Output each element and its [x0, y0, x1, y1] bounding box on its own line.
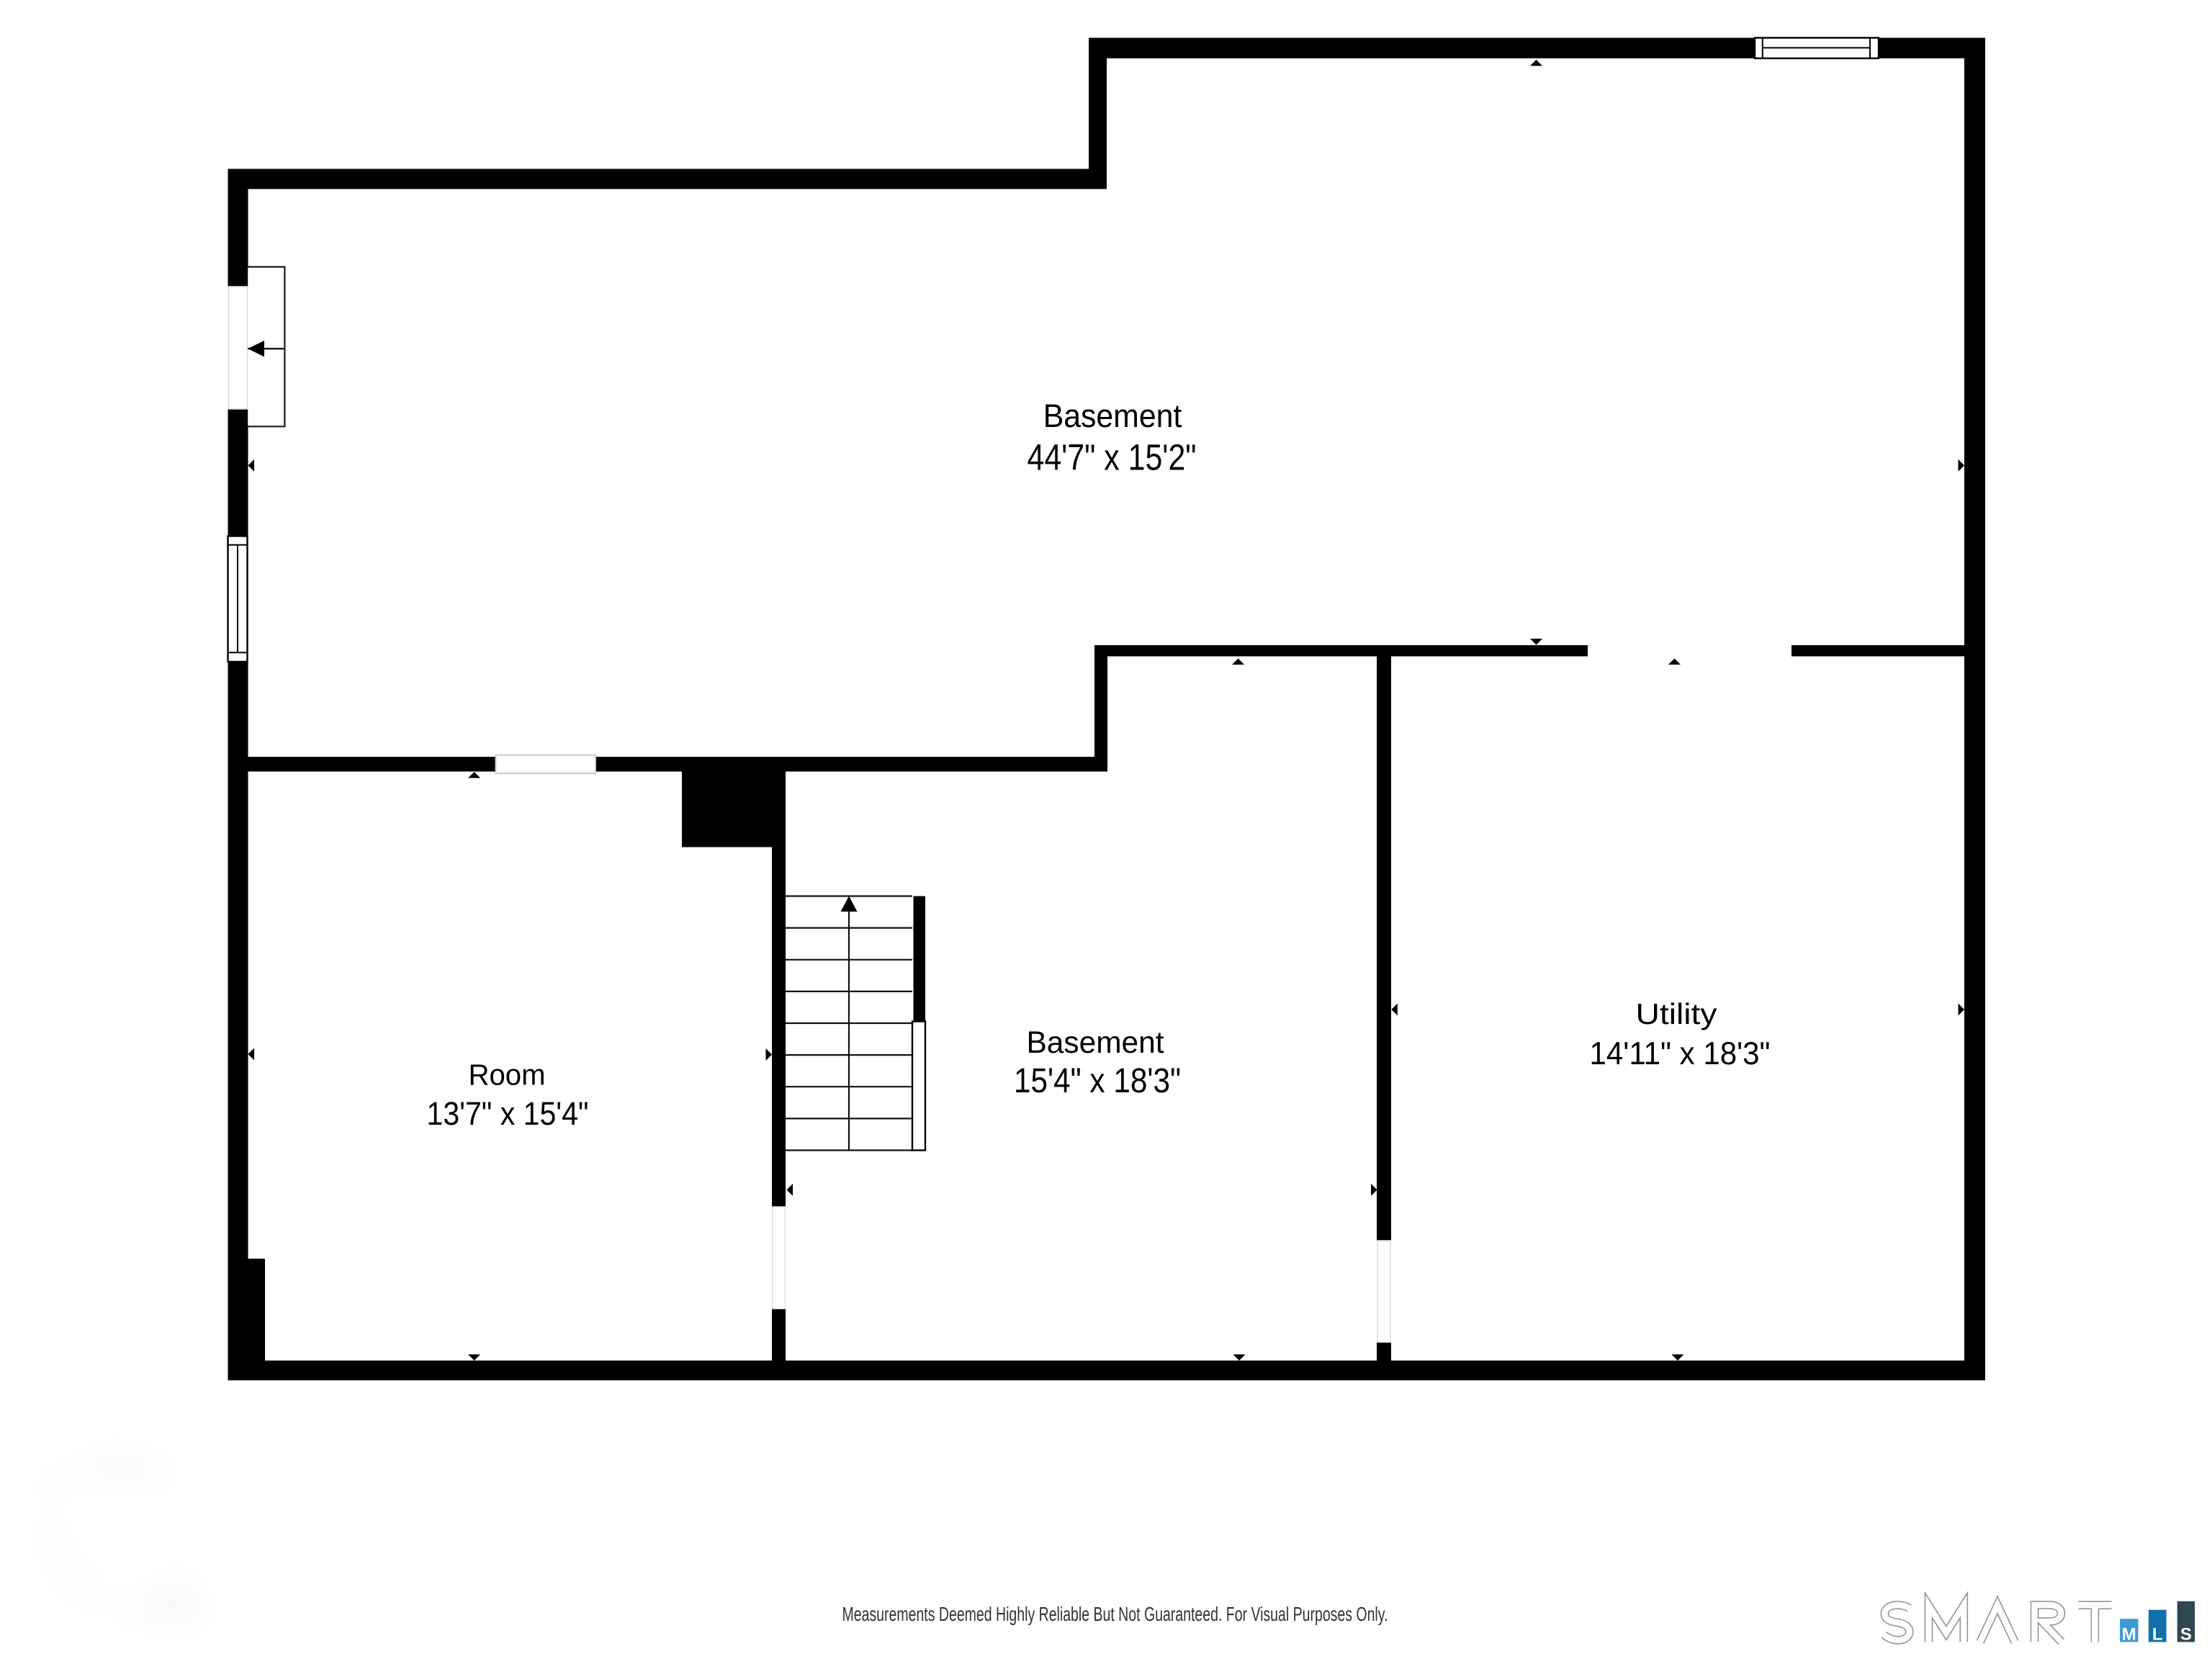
svg-text:13'7" x 15'4": 13'7" x 15'4" [427, 1095, 589, 1132]
svg-text:Measurements Deemed Highly Rel: Measurements Deemed Highly Reliable But … [842, 1603, 1388, 1625]
svg-text:Basement: Basement [1043, 397, 1182, 434]
svg-text:15'4" x 18'3": 15'4" x 18'3" [1014, 1061, 1181, 1100]
svg-text:L: L [2152, 1625, 2163, 1645]
svg-text:M: M [2122, 1625, 2136, 1645]
svg-text:Basement: Basement [1027, 1026, 1164, 1060]
svg-text:14'11" x 18'3": 14'11" x 18'3" [1590, 1036, 1771, 1071]
svg-text:Utility: Utility [1636, 997, 1718, 1030]
svg-text:S: S [2180, 1625, 2192, 1645]
svg-text:Room: Room [469, 1058, 546, 1092]
svg-text:44'7" x 15'2": 44'7" x 15'2" [1028, 437, 1197, 478]
